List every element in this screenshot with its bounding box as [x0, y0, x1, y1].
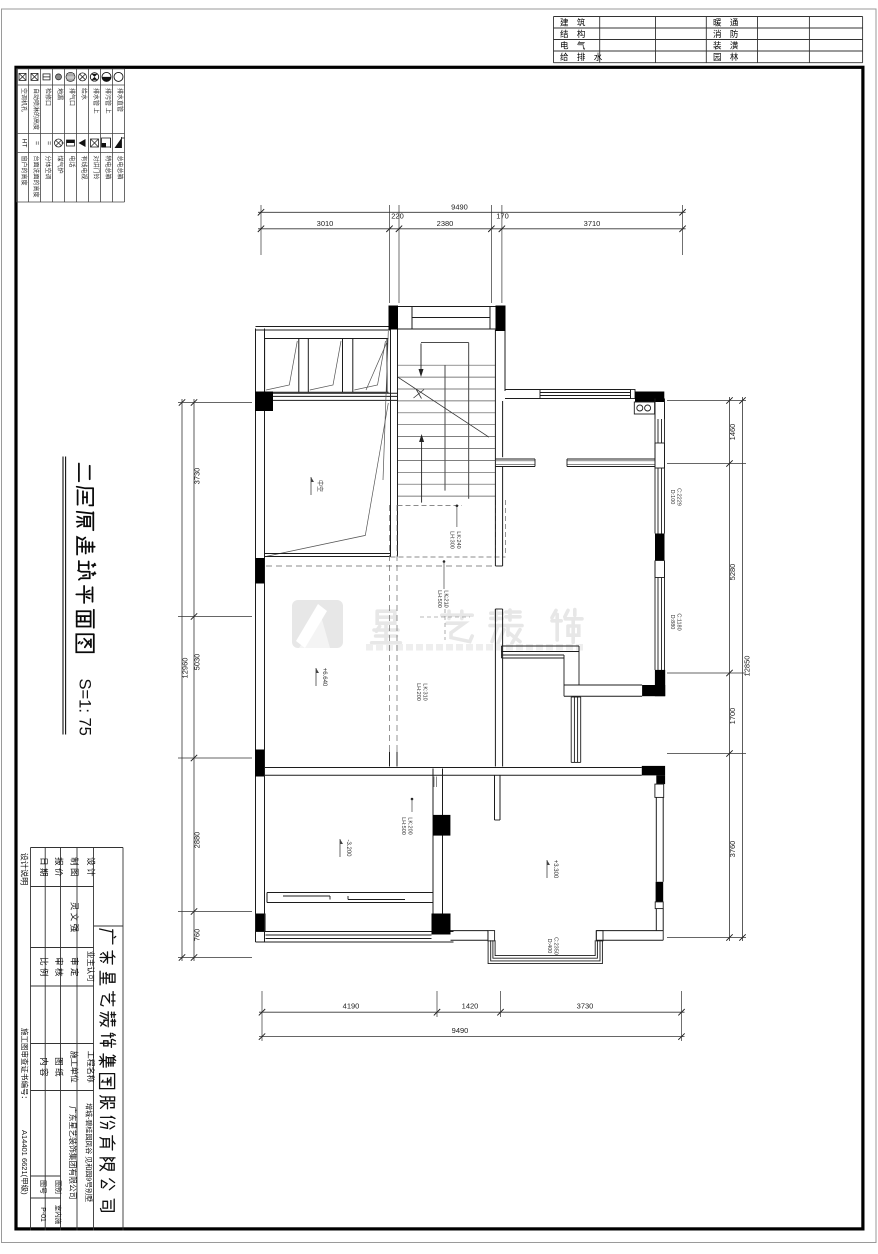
- svg-text:LK:200: LK:200: [407, 817, 413, 834]
- svg-text:排水管 上: 排水管 上: [92, 88, 100, 114]
- svg-text:内 容: 内 容: [39, 1057, 49, 1077]
- svg-text:=: =: [33, 141, 40, 145]
- svg-text:中空: 中空: [316, 480, 324, 492]
- svg-text:有线电视: 有线电视: [80, 156, 88, 180]
- svg-text:5030: 5030: [193, 654, 202, 671]
- svg-text:1460: 1460: [728, 424, 737, 441]
- svg-text:2380: 2380: [437, 219, 454, 228]
- svg-text:LH:500: LH:500: [400, 817, 406, 835]
- svg-text:日 期: 日 期: [39, 857, 49, 876]
- svg-text:1420: 1420: [462, 1002, 479, 1011]
- svg-text:给水: 给水: [80, 88, 88, 100]
- svg-text:报 价: 报 价: [54, 857, 64, 877]
- svg-text:分体空调: 分体空调: [44, 156, 52, 180]
- svg-text:业主认可: 业主认可: [86, 951, 96, 982]
- svg-text:A14401 6621(甲级): A14401 6621(甲级): [20, 1130, 30, 1195]
- svg-text:施工图审查证书编号：: 施工图审查证书编号：: [20, 1028, 30, 1103]
- svg-text:LK:310: LK:310: [422, 683, 428, 700]
- svg-text:170: 170: [496, 212, 509, 221]
- svg-text:-3.200: -3.200: [345, 839, 351, 857]
- svg-text:设 计: 设 计: [86, 857, 96, 877]
- svg-text:增城-碧桂园凤谷 见和园9号别墅: 增城-碧桂园凤谷 见和园9号别墅: [85, 1103, 94, 1202]
- svg-text:审 核: 审 核: [54, 957, 64, 977]
- svg-text:特电总箱: 特电总箱: [104, 156, 112, 180]
- svg-text:制 图: 制 图: [70, 857, 80, 876]
- svg-text:地漏: 地漏: [56, 88, 64, 100]
- svg-text:检修口: 检修口: [44, 88, 52, 106]
- svg-text:灵 文 强: 灵 文 强: [70, 902, 80, 933]
- svg-text:HT: HT: [21, 139, 28, 148]
- svg-text:图别: 图别: [54, 1180, 63, 1194]
- svg-text:9490: 9490: [451, 203, 468, 212]
- svg-text:广东星艺装饰集团有限公司: 广东星艺装饰集团有限公司: [68, 1106, 78, 1200]
- svg-text:1700: 1700: [728, 708, 737, 725]
- svg-text:5280: 5280: [728, 564, 737, 581]
- svg-text:台面洗面的高度: 台面洗面的高度: [32, 156, 40, 198]
- svg-text:LK:210: LK:210: [443, 590, 449, 607]
- svg-text:窗户的高度: 窗户的高度: [20, 156, 28, 186]
- svg-text:3730: 3730: [193, 468, 202, 485]
- svg-text:总电总箱: 总电总箱: [116, 156, 124, 180]
- svg-text:图 纸: 图 纸: [54, 1057, 64, 1077]
- svg-text:消 防: 消 防: [713, 29, 741, 39]
- svg-text:电 气: 电 气: [560, 40, 588, 50]
- svg-text:室内施: 室内施: [54, 1205, 63, 1225]
- svg-text:2880: 2880: [193, 832, 202, 849]
- svg-text:3710: 3710: [584, 219, 601, 228]
- svg-text:P-01: P-01: [39, 1207, 46, 1222]
- svg-text:12960: 12960: [181, 658, 190, 679]
- svg-text:对讲门铃: 对讲门铃: [92, 156, 100, 180]
- svg-text:结 构: 结 构: [560, 29, 588, 39]
- svg-text:排污管 上: 排污管 上: [104, 88, 112, 114]
- svg-text:+6.640: +6.640: [321, 668, 327, 687]
- svg-text:4190: 4190: [343, 1002, 360, 1011]
- svg-text:LK:240: LK:240: [455, 531, 461, 548]
- svg-text:煤气炉: 煤气炉: [56, 156, 64, 174]
- svg-text:空调机孔: 空调机孔: [20, 88, 28, 112]
- svg-text:3730: 3730: [577, 1002, 594, 1011]
- svg-text:装 潢: 装 潢: [713, 40, 741, 50]
- svg-text:D:100: D:100: [669, 490, 675, 505]
- svg-text:D:880: D:880: [669, 615, 675, 630]
- svg-text:图号: 图号: [39, 1180, 47, 1194]
- svg-text:电话: 电话: [68, 156, 76, 168]
- svg-text:3760: 3760: [728, 841, 737, 858]
- svg-text:C:2350: C:2350: [553, 937, 559, 955]
- svg-text:园 林: 园 林: [713, 52, 741, 62]
- svg-text:比 例: 比 例: [39, 957, 49, 976]
- svg-text:D:400: D:400: [546, 939, 552, 954]
- svg-text:LH:300: LH:300: [449, 531, 455, 549]
- svg-text:+3.300: +3.300: [552, 860, 558, 879]
- svg-text:审 定: 审 定: [70, 957, 80, 977]
- svg-text:排水直管: 排水直管: [116, 88, 124, 112]
- svg-text:3010: 3010: [317, 219, 334, 228]
- svg-text:排气口: 排气口: [68, 88, 76, 106]
- svg-text:施工单位: 施工单位: [70, 1051, 80, 1083]
- svg-text:设计说明: 设计说明: [20, 853, 30, 886]
- svg-text:760: 760: [193, 929, 202, 942]
- svg-text:9490: 9490: [452, 1026, 469, 1035]
- svg-text:220: 220: [391, 212, 404, 221]
- svg-text:C:2229: C:2229: [676, 488, 682, 506]
- svg-text:建 筑: 建 筑: [560, 17, 588, 27]
- svg-text:LH:200: LH:200: [415, 683, 421, 701]
- svg-text:C:1180: C:1180: [676, 613, 682, 630]
- svg-text:=: =: [45, 141, 52, 145]
- svg-text:给 排 水: 给 排 水: [560, 52, 605, 62]
- svg-text:工程名称: 工程名称: [86, 1051, 96, 1083]
- svg-text:暖 通: 暖 通: [713, 17, 741, 27]
- svg-text:S=1: 75: S=1: 75: [76, 679, 94, 736]
- svg-text:LH:500: LH:500: [436, 590, 442, 608]
- svg-text:自动喷淋的高度: 自动喷淋的高度: [32, 88, 40, 130]
